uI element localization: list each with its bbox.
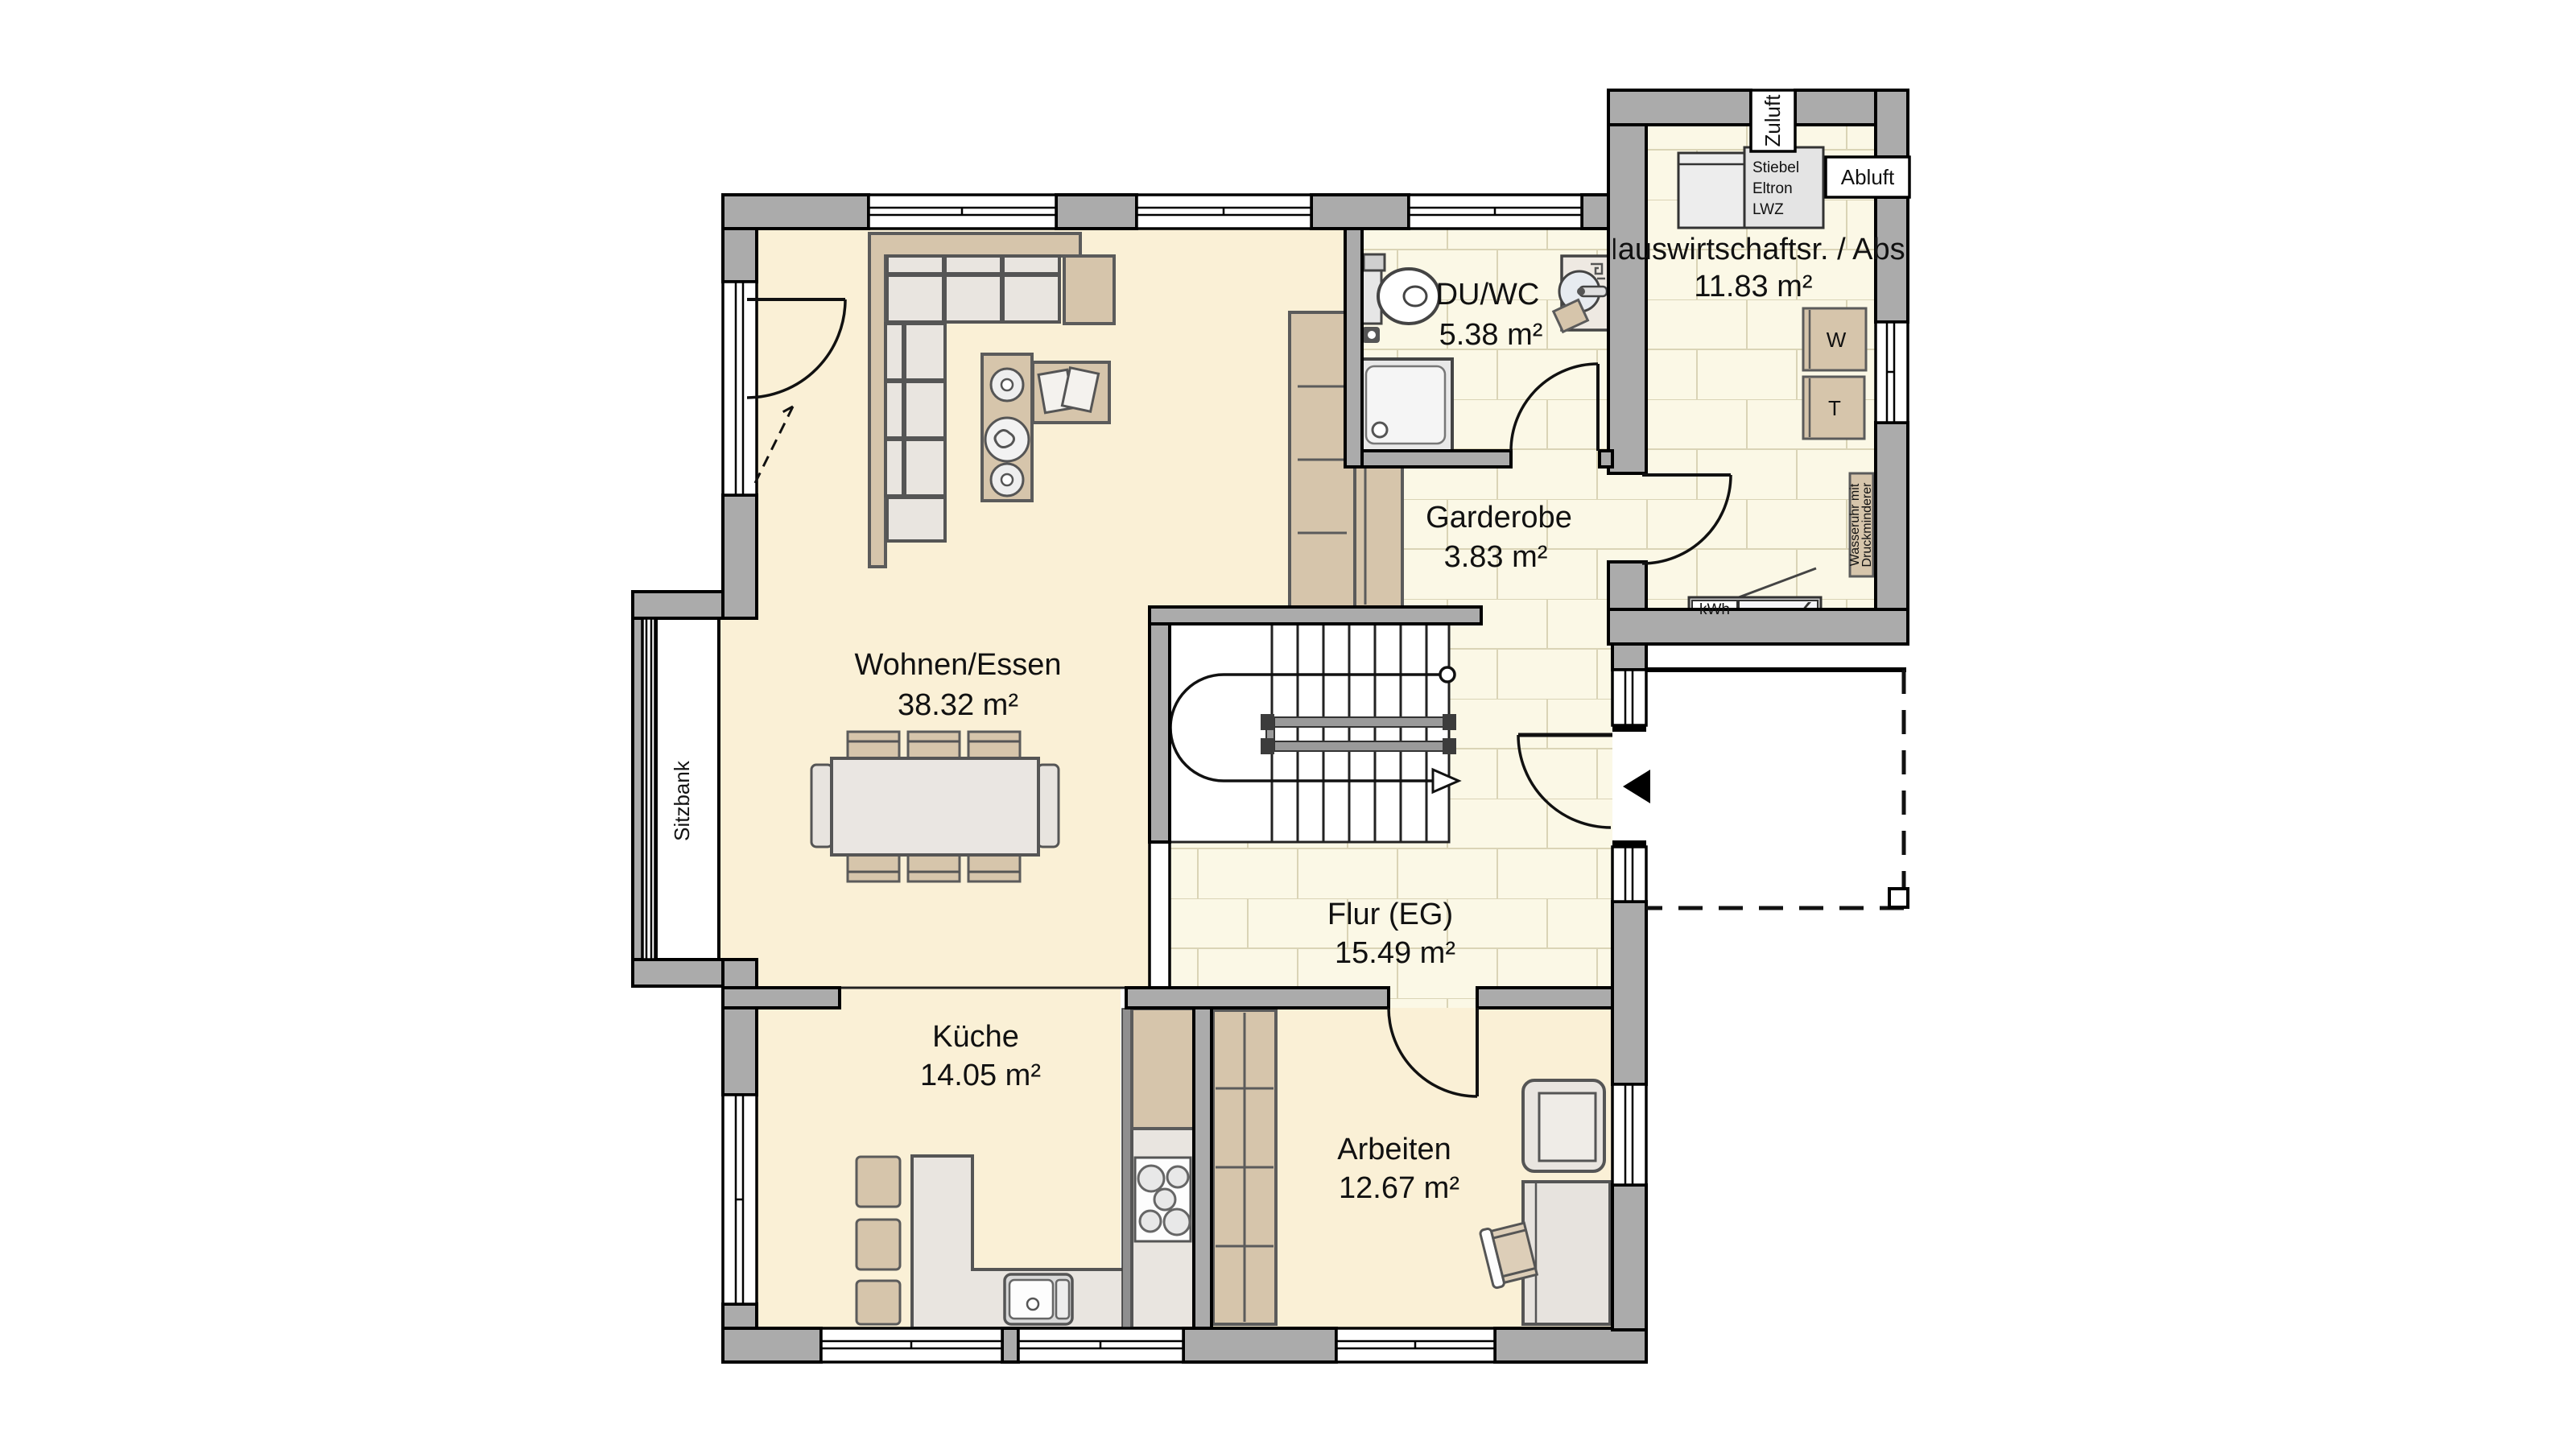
media-console: [982, 354, 1032, 501]
floor-bay: [719, 618, 757, 960]
dining-table: [832, 758, 1038, 855]
label-flur-area: 15.49 m²: [1335, 936, 1455, 970]
label-duwc-area: 5.38 m²: [1439, 318, 1543, 352]
label-wohnen-area: 38.32 m²: [898, 688, 1018, 722]
stair-handrail: [1266, 717, 1449, 727]
label-flur: Flur (EG): [1327, 898, 1453, 931]
kitchen-tall-unit: [1132, 1009, 1194, 1129]
label-sitzbank: Sitzbank: [670, 760, 694, 841]
window-hwr-right: [1876, 322, 1908, 423]
porch-outline: [1646, 670, 1908, 908]
window-bay: [642, 618, 655, 960]
label-washer: W: [1827, 328, 1847, 352]
label-duwc: DU/WC: [1436, 278, 1540, 312]
bar-stool: [857, 1157, 900, 1207]
label-kueche-area: 14.05 m²: [920, 1059, 1041, 1092]
label-hwr-area: 11.83 m²: [1694, 270, 1812, 303]
label-arbeiten-area: 12.67 m²: [1339, 1171, 1459, 1205]
window-top-duwc: [1409, 195, 1582, 229]
label-wasseruhr-2: Druckminderer: [1860, 482, 1874, 568]
floorplan-canvas: Wohnen/Essen 38.32 m² DU/WC 5.38 m² Haus…: [0, 0, 2576, 1449]
bar-stool: [857, 1220, 900, 1269]
window-bottom-kueche-2: [1018, 1328, 1183, 1362]
window-bottom-kueche-1: [821, 1328, 1002, 1362]
label-hwr: Hauswirtschaftsr. / Abst.: [1596, 233, 1922, 266]
label-arbeiten: Arbeiten: [1337, 1133, 1451, 1166]
label-lwz-3: LWZ: [1752, 201, 1784, 218]
entrance-sidelight-top: [1612, 670, 1646, 725]
floor-hwr-doorgap: [1608, 473, 1646, 562]
label-lwz-2: Eltron: [1752, 180, 1793, 197]
window-top-2: [1137, 195, 1311, 229]
window-left-kueche: [723, 1095, 757, 1304]
staircase: [1170, 624, 1459, 842]
label-kueche: Küche: [932, 1020, 1019, 1054]
floor-duwc-doorgap: [1511, 451, 1600, 467]
window-bottom-arbeiten: [1336, 1328, 1495, 1362]
side-table: [1033, 362, 1109, 423]
label-abluft: Abluft: [1841, 165, 1895, 189]
label-garderobe-area: 3.83 m²: [1444, 540, 1548, 574]
bar-stool: [857, 1281, 900, 1324]
toilet-cistern: [1364, 254, 1385, 270]
floor-flur-n: [1481, 607, 1612, 624]
entrance-arrow-icon: [1623, 770, 1650, 803]
label-dryer: T: [1828, 396, 1841, 420]
label-garderobe: Garderobe: [1426, 501, 1572, 535]
floorplan-ground-floor: Wohnen/Essen 38.32 m² DU/WC 5.38 m² Haus…: [0, 0, 2576, 1449]
french-door-left: [723, 282, 757, 495]
window-top-1: [869, 195, 1056, 229]
label-lwz-1: Stiebel: [1752, 159, 1799, 176]
partition-under-stair: [1150, 842, 1170, 988]
label-kwh: kWh: [1699, 601, 1730, 618]
label-zuluft: Zuluft: [1761, 94, 1785, 147]
floor-arbeiten-doorgap: [1389, 988, 1477, 1008]
label-wohnen: Wohnen/Essen: [854, 648, 1061, 682]
garderobe-closet: [1355, 460, 1402, 607]
window-right-arbeiten: [1612, 1084, 1646, 1185]
entrance-sidelight-bottom: [1612, 847, 1646, 902]
